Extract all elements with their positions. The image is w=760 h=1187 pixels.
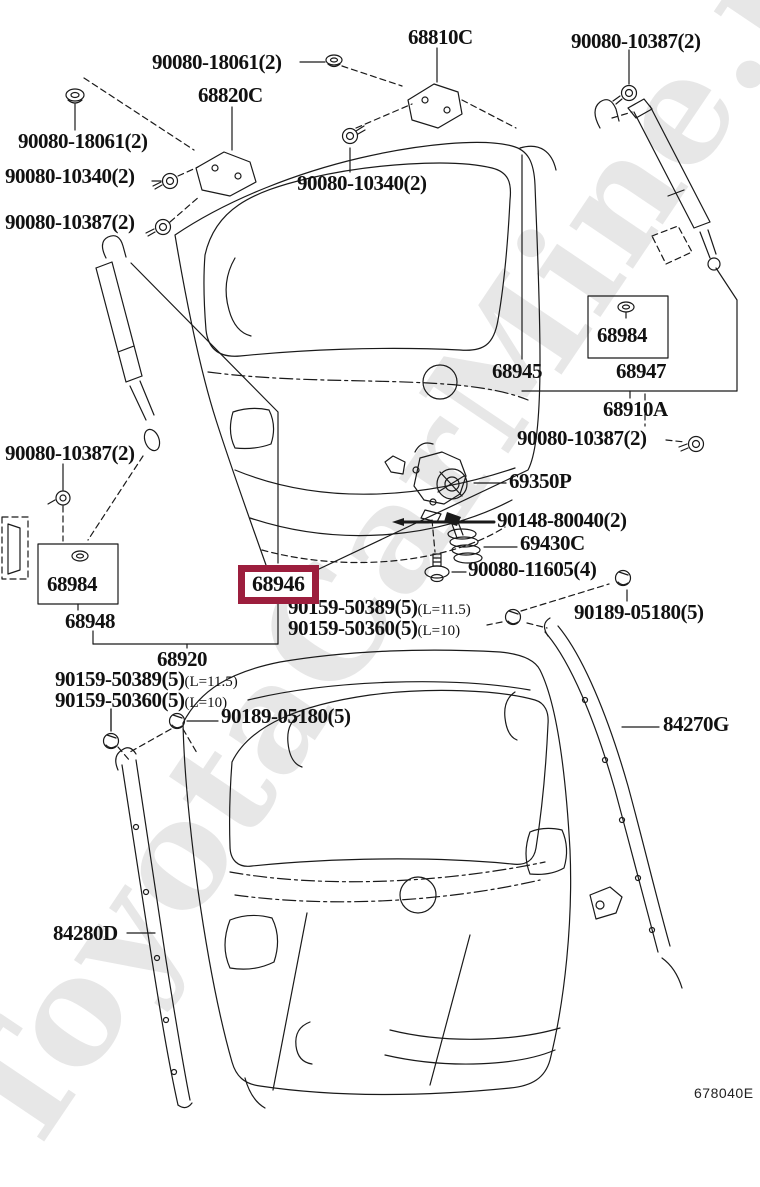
clip-icon — [616, 571, 631, 602]
part-label-90080-10387-mid[interactable]: 90080-10387(2) — [517, 428, 646, 449]
lock-assembly-69350P — [385, 443, 506, 552]
bolt-11605 — [425, 554, 466, 582]
bracket-68920 — [93, 631, 278, 648]
grommet-icon — [326, 55, 402, 86]
weatherstrip-84270G — [544, 618, 682, 988]
part-label-90148-80040[interactable]: 90148-80040(2) — [497, 510, 626, 531]
part-label-68946: 68946 — [252, 571, 305, 596]
clip-icon — [104, 709, 131, 761]
part-label-84280D[interactable]: 84280D — [53, 923, 118, 944]
part-label-68820C[interactable]: 68820C — [198, 85, 263, 106]
part-label-90080-18061-left[interactable]: 90080-18061(2) — [18, 131, 147, 152]
part-label-90159-50360-left[interactable]: 90159-50360(5)(L=10) — [55, 690, 227, 714]
highlighted-part-68946[interactable]: 68946 — [238, 565, 319, 604]
part-label-90080-10340-center[interactable]: 90080-10340(2) — [297, 173, 426, 194]
clip-icon — [130, 714, 218, 754]
parts-diagram-page: ToyotaCarMine.ru — [0, 0, 760, 1112]
hinge-68820C — [196, 152, 256, 196]
part-label-90189-05180-right[interactable]: 90189-05180(5) — [574, 602, 703, 623]
weatherstrip-84280D — [116, 748, 192, 1108]
part-label-68910A[interactable]: 68910A — [603, 399, 668, 420]
part-label-68984-left[interactable]: 68984 — [47, 574, 97, 595]
hinge-68810C — [408, 84, 516, 128]
part-label-90159-50360-center[interactable]: 90159-50360(5)(L=10) — [288, 618, 460, 642]
part-label-69350P[interactable]: 69350P — [509, 471, 571, 492]
part-label-68947[interactable]: 68947 — [616, 361, 666, 382]
length-qualifier: (L=10) — [417, 623, 460, 639]
gas-strut-left — [88, 236, 162, 540]
bolt-icon — [153, 167, 198, 189]
bolt-icon — [343, 104, 413, 172]
screw-90148 — [392, 512, 494, 538]
bolt-icon — [146, 196, 200, 236]
length-qualifier: (L=11.5) — [184, 674, 237, 690]
part-label-69430C[interactable]: 69430C — [520, 533, 585, 554]
part-label-90080-10387-left2[interactable]: 90080-10387(2) — [5, 443, 134, 464]
part-label-84270G[interactable]: 84270G — [663, 714, 729, 735]
part-label-90189-05180-left[interactable]: 90189-05180(5) — [221, 706, 350, 727]
length-qualifier: (L=11.5) — [417, 602, 470, 618]
part-label-68984-right[interactable]: 68984 — [597, 325, 647, 346]
part-label-90080-10387-left1[interactable]: 90080-10387(2) — [5, 212, 134, 233]
diagram-code: 678040E — [694, 1085, 754, 1101]
part-label-90080-18061-top[interactable]: 90080-18061(2) — [152, 52, 281, 73]
part-label-68948[interactable]: 68948 — [65, 611, 115, 632]
part-label-68945[interactable]: 68945 — [492, 361, 542, 382]
part-label-90080-10387-topright[interactable]: 90080-10387(2) — [571, 31, 700, 52]
part-label-90080-11605[interactable]: 90080-11605(4) — [468, 559, 596, 580]
part-label-90080-10340-left[interactable]: 90080-10340(2) — [5, 166, 134, 187]
part-label-68810C[interactable]: 68810C — [408, 27, 473, 48]
